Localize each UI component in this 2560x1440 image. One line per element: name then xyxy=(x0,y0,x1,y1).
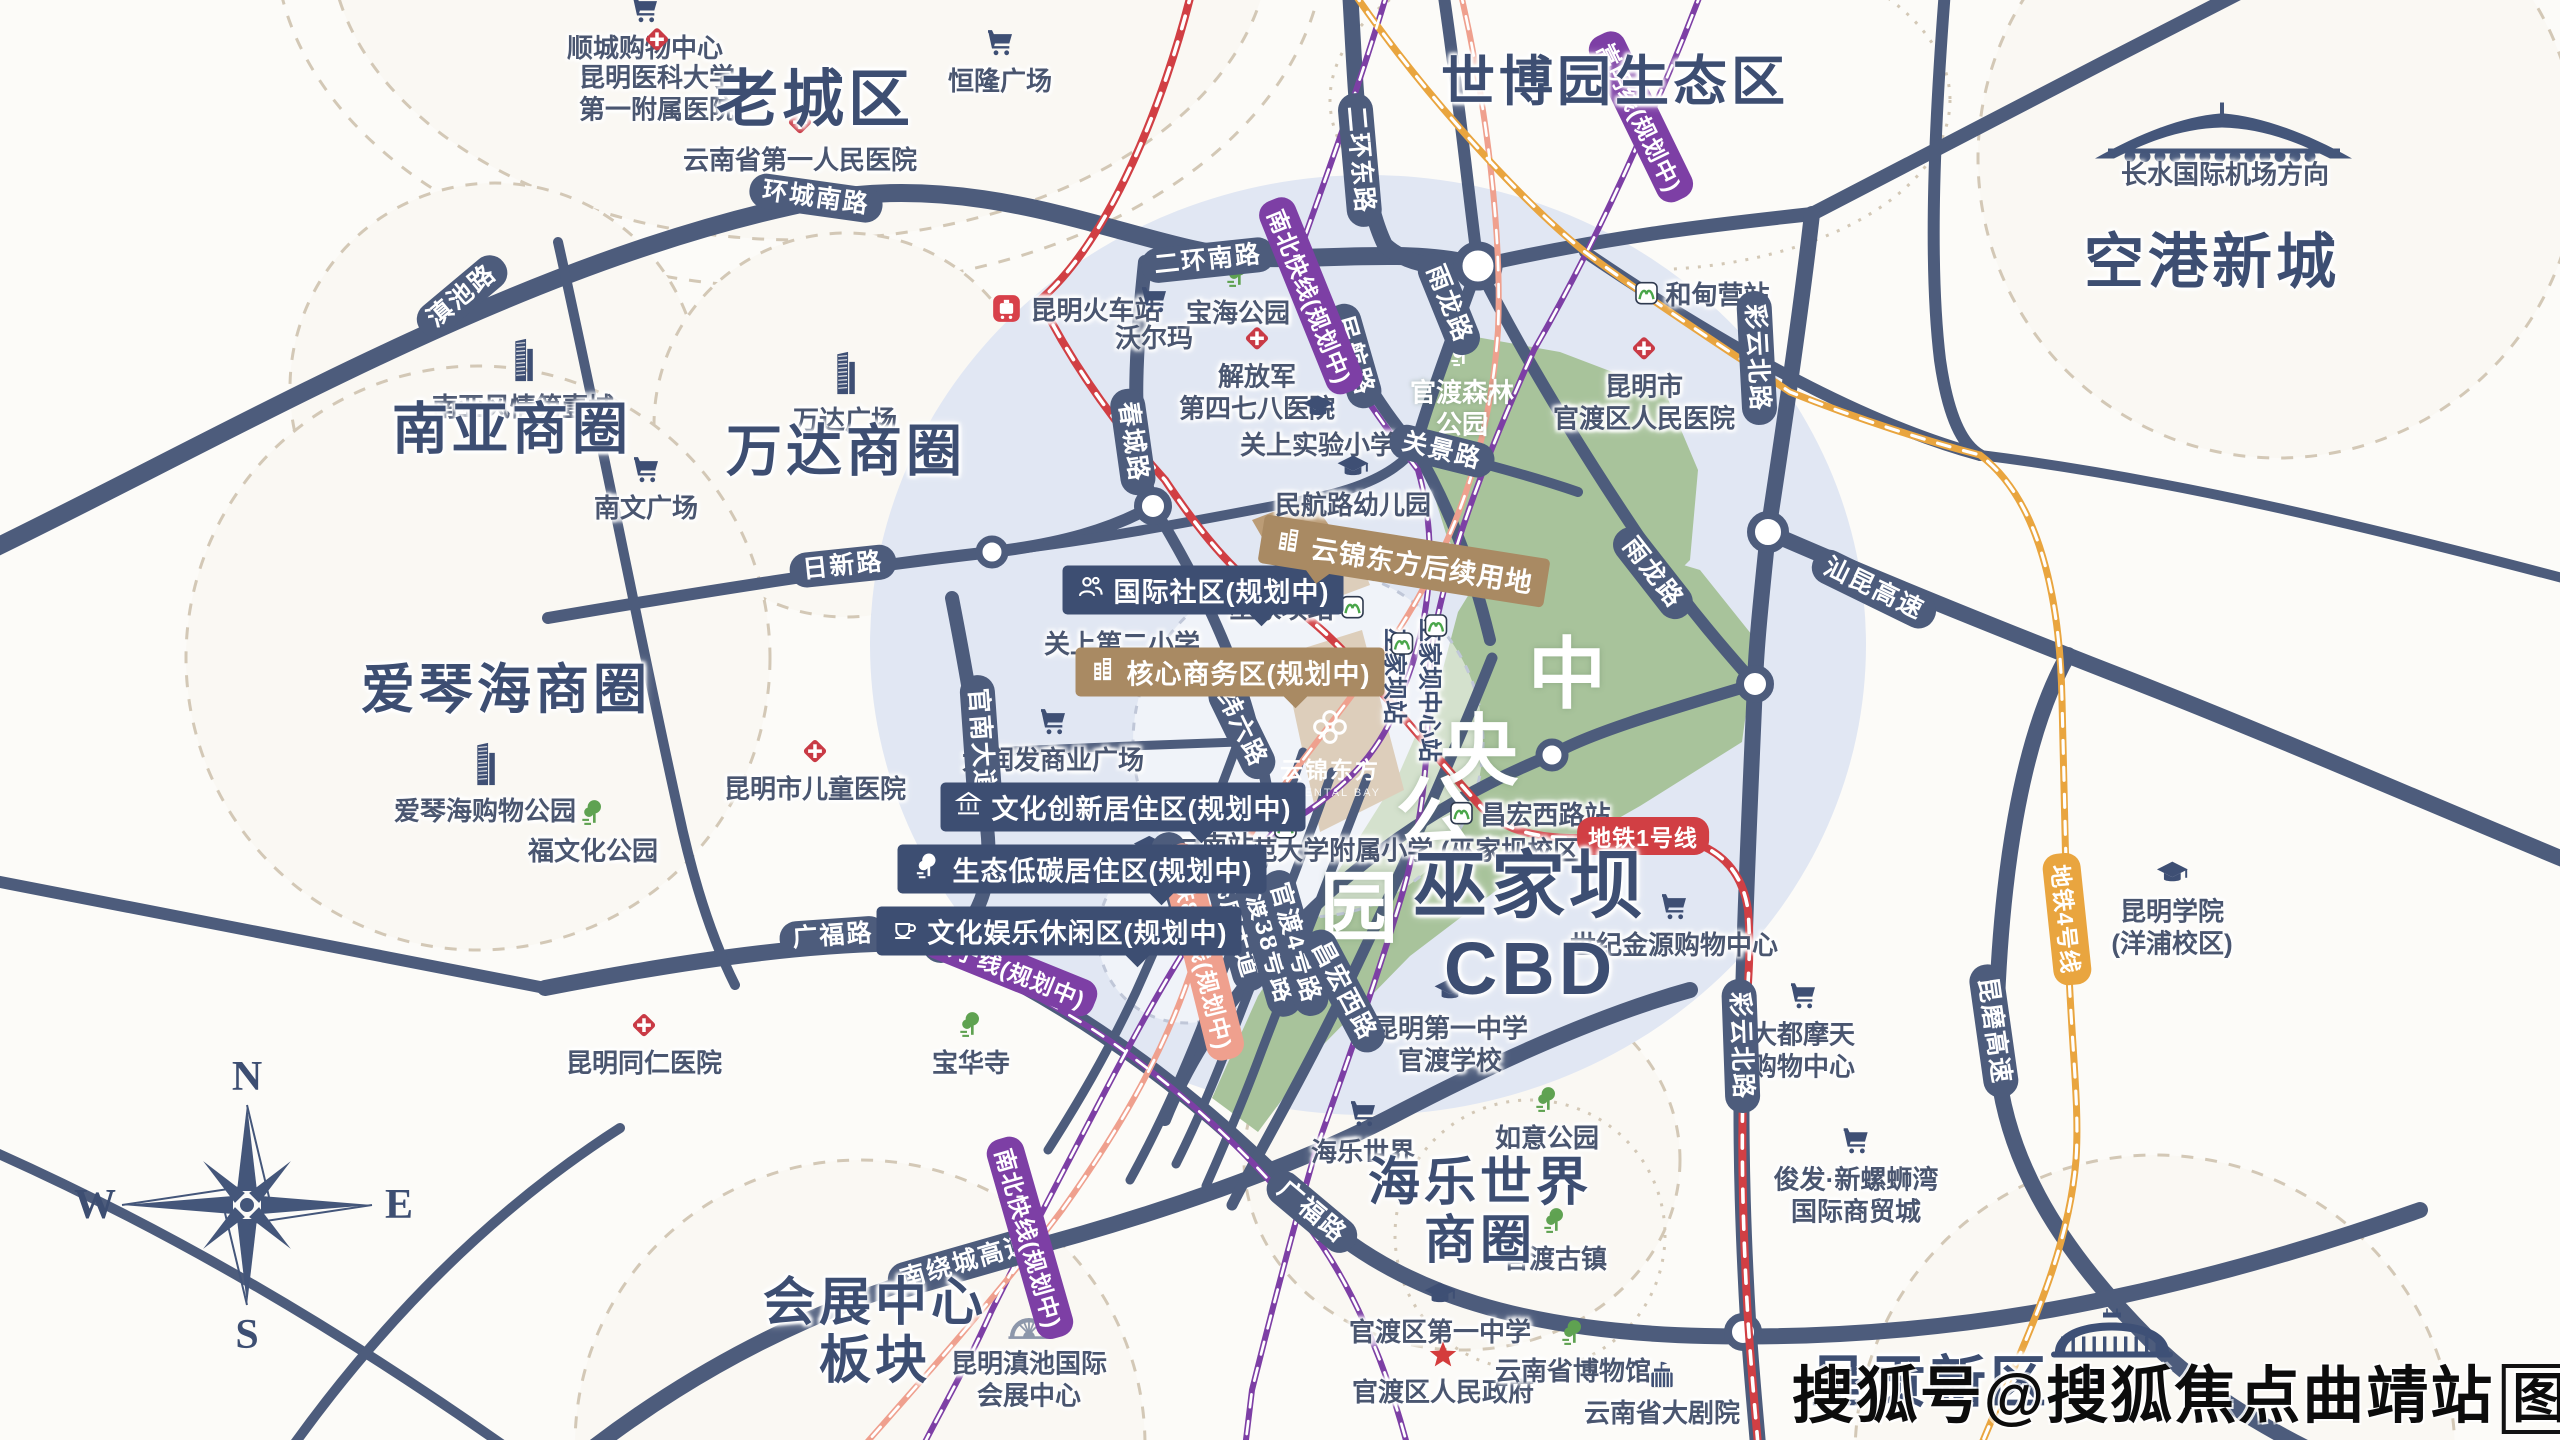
planning-tag: 生态低碳居住区(规划中) xyxy=(898,845,1267,894)
road-name-pill: 彩云北路 xyxy=(1721,978,1760,1113)
poi-label: 俊发·新螺蛳湾国际商贸城 xyxy=(1774,1124,1939,1227)
hospital-icon xyxy=(1629,333,1659,368)
compass-e: E xyxy=(385,1181,413,1229)
cart-icon xyxy=(1346,1097,1380,1134)
poi-label-line: 昆明医科大学 xyxy=(579,62,735,94)
poi-label-line: 云南省第一人民医院 xyxy=(683,145,917,177)
poi-label-text: 昆明学院(洋浦校区) xyxy=(2111,896,2232,959)
district-label: 巫家坝CBD xyxy=(1413,845,1647,1011)
cart-icon xyxy=(1786,979,1820,1016)
road-name-pill: 彩云北路 xyxy=(1736,290,1778,426)
theater-icon xyxy=(1646,1360,1678,1395)
road-name-pill: 广福路 xyxy=(778,915,887,957)
bank-icon xyxy=(955,791,983,824)
poi-label-text: 南文广场 xyxy=(594,493,698,525)
district-label: 爱琴海商圈 xyxy=(361,660,651,720)
poi-label: 云南省大剧院 xyxy=(1584,1360,1740,1430)
poi-label-line: 恒隆广场 xyxy=(948,66,1052,98)
poi-label-line: 购物中心 xyxy=(1751,1051,1855,1083)
poi-label-text: 宝华寺 xyxy=(932,1048,1010,1080)
district-label-line: 板块 xyxy=(763,1332,987,1390)
tree-icon xyxy=(1531,1083,1563,1120)
district-label: 世博园生态区 xyxy=(1441,52,1789,112)
compass-n: N xyxy=(232,1053,262,1101)
star-icon xyxy=(1428,1339,1458,1374)
poi-label-line: 福文化公园 xyxy=(528,836,658,868)
train-icon xyxy=(989,293,1023,330)
poi-label: 民航路幼儿园 xyxy=(1275,454,1431,522)
poi-label-line: 官渡森林 xyxy=(1410,377,1514,409)
planning-tag-text: 核心商务区(规划中) xyxy=(1127,653,1371,692)
building-icon xyxy=(510,338,536,389)
cup-icon xyxy=(891,915,919,948)
district-label-line: 南亚商圈 xyxy=(392,399,632,462)
watermark: 搜狐号@搜狐焦点曲靖站图 xyxy=(1792,1345,2560,1435)
poi-label: 大都摩天购物中心 xyxy=(1751,979,1855,1082)
cart-icon xyxy=(1036,705,1070,742)
watermark-text: 搜狐号@搜狐焦点曲靖站 xyxy=(1792,1362,2494,1431)
metro-icon xyxy=(1634,282,1658,311)
cap-icon xyxy=(1423,1281,1457,1314)
poi-label: 长水国际机场方向 xyxy=(2121,157,2329,192)
district-label-line: 会展中心 xyxy=(763,1274,987,1332)
tree-icon xyxy=(1557,1316,1589,1353)
poi-label-line: 解放军 xyxy=(1179,361,1335,393)
district-label-line: 世博园生态区 xyxy=(1441,52,1789,112)
cart-icon xyxy=(629,453,663,490)
district-label: 万达商圈 xyxy=(726,421,966,484)
poi-label-line: 昆明市儿童医院 xyxy=(724,774,906,806)
metro-icon xyxy=(1449,802,1473,831)
planning-tag-text: 文化创新居住区(规划中) xyxy=(992,788,1292,827)
poi-label-line: 国际商贸城 xyxy=(1774,1196,1939,1228)
poi-label: 昆明市官渡区人民医院 xyxy=(1553,333,1735,434)
people-icon xyxy=(1077,574,1105,607)
cart-icon xyxy=(983,26,1017,63)
buildings-icon xyxy=(1273,524,1306,561)
planning-tag-text: 国际社区(规划中) xyxy=(1114,571,1330,610)
poi-label: 南文广场 xyxy=(594,453,698,525)
hospital-icon xyxy=(642,24,672,59)
district-label-line: 海乐世界 xyxy=(1368,1154,1592,1212)
metro-icon xyxy=(1341,596,1365,625)
compass-w: W xyxy=(74,1181,116,1229)
district-label-line: 巫家坝 xyxy=(1413,845,1647,928)
poi-label-line: 昆明学院 xyxy=(2111,896,2232,928)
hospital-icon xyxy=(800,736,830,771)
planning-tag: 文化创新居住区(规划中) xyxy=(941,783,1306,832)
tree-white-icon xyxy=(912,850,944,889)
poi-label-line: 官渡区人民医院 xyxy=(1553,403,1735,435)
poi-label-line: 昆明第一中学 xyxy=(1372,1013,1528,1045)
cart-icon xyxy=(1137,283,1171,320)
poi-label-text: 俊发·新螺蛳湾国际商贸城 xyxy=(1774,1164,1939,1227)
poi-label-text: 云南省大剧院 xyxy=(1584,1398,1740,1430)
poi-label-text: 云南省第一人民医院 xyxy=(683,145,917,177)
district-label: 空港新城 xyxy=(2084,228,2340,295)
map-canvas: 搜狐号@搜狐焦点曲靖站图 N E S W 云锦东方 ORIENTAL BAY 老… xyxy=(0,0,2560,1440)
district-label-line: 爱琴海商圈 xyxy=(361,660,651,720)
district-label-line: CBD xyxy=(1413,928,1647,1011)
tree-icon xyxy=(577,796,609,833)
tree-icon xyxy=(955,1008,987,1045)
poi-label-line: 大都摩天 xyxy=(1751,1019,1855,1051)
project-name: 云锦东方 xyxy=(1280,751,1380,785)
poi-label: 福文化公园 xyxy=(528,796,658,868)
poi-label-line: 长水国际机场方向 xyxy=(2121,160,2329,192)
poi-label-line: 官渡学校 xyxy=(1372,1045,1528,1077)
planning-tag: 文化娱乐休闲区(规划中) xyxy=(877,907,1242,956)
poi-label-text: 福文化公园 xyxy=(528,836,658,868)
district-label: 南亚商圈 xyxy=(392,399,632,462)
poi-label: 恒隆广场 xyxy=(948,26,1052,98)
poi-label-text: 昆明市官渡区人民医院 xyxy=(1553,371,1735,434)
planning-tag: 核心商务区(规划中) xyxy=(1076,648,1385,697)
poi-label: 如意公园 xyxy=(1495,1083,1599,1155)
hospital-icon xyxy=(1242,323,1272,358)
district-label: 会展中心板块 xyxy=(763,1274,987,1390)
planning-tag-text: 文化娱乐休闲区(规划中) xyxy=(928,912,1228,951)
poi-label: 宝华寺 xyxy=(932,1008,1010,1080)
poi-label-line: 昆明市 xyxy=(1553,371,1735,403)
district-label: 海乐世界商圈 xyxy=(1368,1154,1592,1270)
poi-label-text: 昆明同仁医院 xyxy=(566,1048,722,1080)
cart-icon xyxy=(1839,1124,1873,1161)
poi-label: 昆明市儿童医院 xyxy=(724,736,906,806)
flower-icon xyxy=(1308,705,1352,749)
poi-label-text: 民航路幼儿园 xyxy=(1275,490,1431,522)
poi-label-line: 昆明同仁医院 xyxy=(566,1048,722,1080)
poi-label-line: 民航路幼儿园 xyxy=(1275,490,1431,522)
compass-s: S xyxy=(235,1311,258,1359)
poi-label-line: 如意公园 xyxy=(1495,1123,1599,1155)
poi-label-text: 大都摩天购物中心 xyxy=(1751,1019,1855,1082)
park-name-letter: 中 xyxy=(1528,612,1606,724)
cap-icon xyxy=(1301,394,1335,427)
poi-label-text: 昆明第一中学官渡学校 xyxy=(1372,1013,1528,1076)
planning-tag: 国际社区(规划中) xyxy=(1063,566,1344,615)
buildings-icon xyxy=(1090,656,1118,689)
district-label: 老城区 xyxy=(716,65,914,134)
poi-label-text: 如意公园 xyxy=(1495,1123,1599,1155)
poi-label-text: 恒隆广场 xyxy=(948,66,1052,98)
poi-label-line: 云南省大剧院 xyxy=(1584,1398,1740,1430)
metro-station-icon xyxy=(1390,632,1414,661)
cart-icon xyxy=(1657,890,1691,927)
district-label-line: 空港新城 xyxy=(2084,228,2340,295)
building-icon xyxy=(472,742,498,793)
poi-label-line: 宝华寺 xyxy=(932,1048,1010,1080)
watermark-box-glyph: 图 xyxy=(2502,1364,2560,1434)
poi-label-line: 南文广场 xyxy=(594,493,698,525)
planning-tag-text: 生态低碳居住区(规划中) xyxy=(953,850,1253,889)
cap-icon xyxy=(1336,454,1370,487)
poi-label-text: 长水国际机场方向 xyxy=(2121,160,2329,192)
building-icon xyxy=(832,351,858,402)
district-label-line: 商圈 xyxy=(1368,1212,1592,1270)
cap-icon xyxy=(2155,860,2189,893)
poi-label-line: (洋浦校区) xyxy=(2111,928,2232,960)
poi-label: 昆明学院(洋浦校区) xyxy=(2111,860,2232,959)
hospital-icon xyxy=(629,1010,659,1045)
poi-label-text: 昆明市儿童医院 xyxy=(724,774,906,806)
poi-label-line: 俊发·新螺蛳湾 xyxy=(1774,1164,1939,1196)
poi-label: 昆明同仁医院 xyxy=(566,1010,722,1080)
metro-station-icon xyxy=(1424,614,1448,643)
district-label-line: 老城区 xyxy=(716,65,914,134)
district-label-line: 万达商圈 xyxy=(726,421,966,484)
